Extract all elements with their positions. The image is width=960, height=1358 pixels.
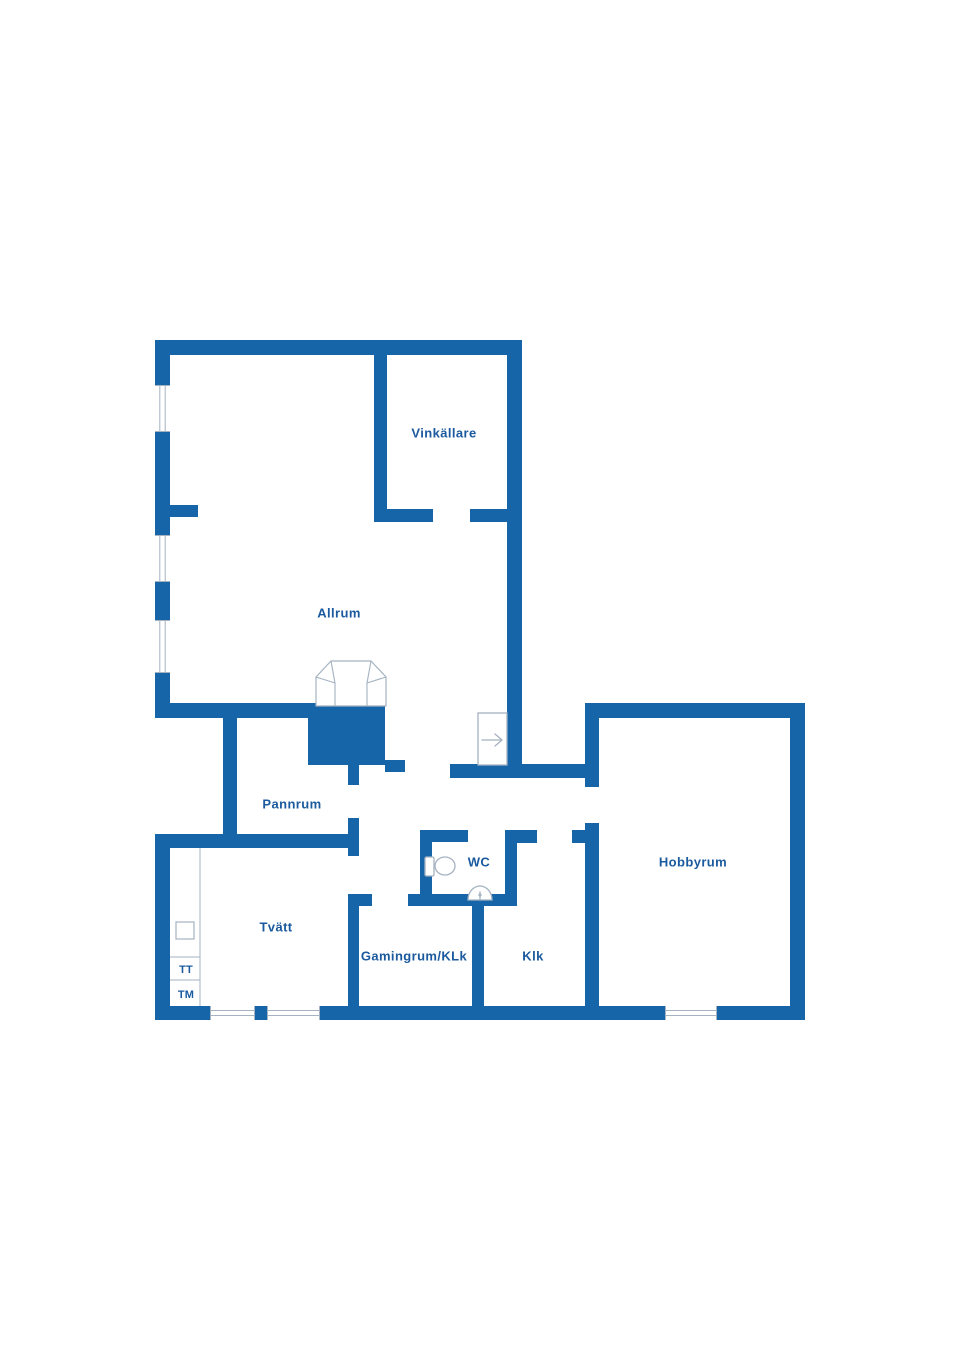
stairs-icon: [478, 713, 507, 765]
walls-layer: [155, 340, 805, 1020]
window: [267, 1006, 320, 1020]
floor-plan: VinkällareAllrumPannrumWCHobbyrumTvättGa…: [0, 0, 960, 1358]
window: [210, 1006, 255, 1020]
window: [155, 535, 170, 582]
appliance-label-tm: TM: [178, 989, 194, 1001]
room-label-tvatt: Tvätt: [259, 919, 292, 934]
wall-hobbyrum-left-upper: [585, 703, 599, 787]
wall-wc-top: [420, 830, 468, 842]
fireplace-icon: [316, 661, 386, 706]
room-label-hobbyrum: Hobbyrum: [659, 854, 727, 869]
wall-vinkallare-left: [374, 355, 387, 511]
wall-hearth-below-stub: [348, 765, 359, 785]
room-label-klk: Klk: [522, 948, 544, 963]
wall-allrum-left-stub: [170, 505, 198, 517]
sink-drain: [478, 893, 481, 896]
wall-vinkallare-bottom-left: [374, 509, 433, 522]
wall-klk-top-stub: [572, 830, 599, 843]
wall-tvatt-gaming-divider: [348, 894, 359, 1012]
wall-tvatt-top: [155, 834, 355, 848]
room-label-pannrum: Pannrum: [262, 796, 321, 811]
wall-hall-bottom-wall: [450, 764, 599, 778]
wall-pannrum-right-lower: [348, 818, 359, 856]
room-label-gamingrum-klk: Gamingrum/KLk: [361, 948, 468, 963]
wall-outer-top: [155, 340, 520, 355]
wall-fireplace-hearth: [308, 703, 385, 765]
wall-vinkallare-bottom-right: [470, 509, 520, 522]
wall-hobbyrum-left-lower: [585, 823, 599, 1013]
laundry-basin-icon: [176, 922, 194, 939]
room-label-wc: WC: [468, 854, 491, 869]
wall-outer-right-wing: [790, 703, 805, 1020]
wall-hobbyrum-top: [585, 703, 805, 718]
appliance-label-tt: TT: [179, 964, 193, 976]
wall-outer-left-lower: [155, 834, 170, 1020]
wall-gaming-door-stub: [359, 894, 372, 906]
floor-plan-svg: VinkällareAllrumPannrumWCHobbyrumTvättGa…: [0, 0, 960, 1358]
wall-gaming-klk-divider: [472, 894, 484, 1014]
room-label-allrum: Allrum: [317, 605, 361, 620]
wall-allrum-right: [507, 340, 522, 778]
room-label-vinkallare: Vinkällare: [411, 425, 476, 440]
toilet-bowl: [435, 857, 455, 875]
toilet-icon: [425, 857, 434, 876]
wall-wc-right: [505, 830, 517, 906]
window: [155, 620, 170, 673]
wall-hearth-right-stub: [385, 760, 405, 772]
window: [155, 385, 170, 432]
windows-layer: [155, 385, 717, 1020]
wall-pannrum-left: [223, 703, 237, 848]
window: [665, 1006, 717, 1020]
